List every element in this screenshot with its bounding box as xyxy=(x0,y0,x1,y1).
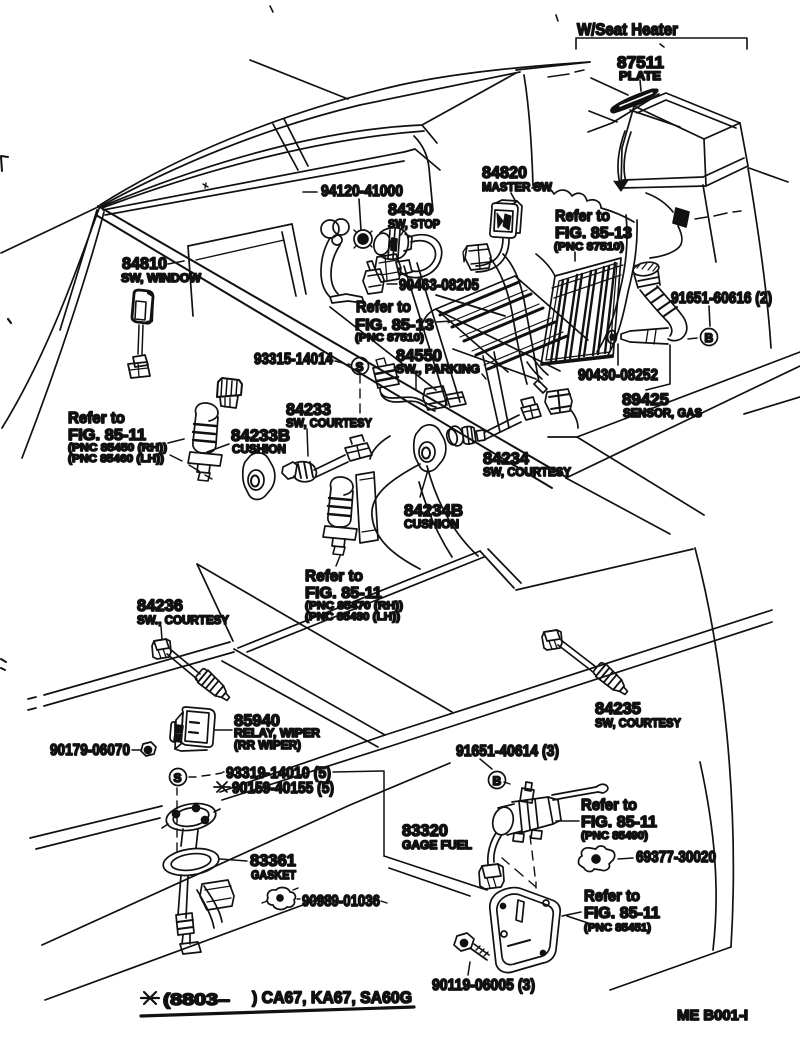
svg-text:Refer to: Refer to xyxy=(581,797,637,814)
svg-text:FIG. 85-11: FIG. 85-11 xyxy=(584,905,660,922)
svg-text:GAGE FUEL: GAGE FUEL xyxy=(402,838,472,852)
svg-text:Refer to: Refer to xyxy=(68,410,125,427)
svg-text:ME B001-I: ME B001-I xyxy=(677,1007,748,1024)
svg-text:(PNC 85480 (LH)): (PNC 85480 (LH)) xyxy=(305,611,400,623)
svg-text:S: S xyxy=(356,360,364,374)
svg-text:SW, COURTESY: SW, COURTESY xyxy=(286,416,372,430)
svg-text:(PNC 87510): (PNC 87510) xyxy=(355,332,424,344)
svg-text:94120-41000: 94120-41000 xyxy=(321,183,403,200)
svg-text:(8803–: (8803– xyxy=(163,990,230,1009)
svg-text:Refer to: Refer to xyxy=(555,208,610,225)
svg-text:MASTER SW: MASTER SW xyxy=(482,180,553,194)
svg-text:) CA67, KA67, SA60G: ) CA67, KA67, SA60G xyxy=(252,988,412,1007)
svg-text:Refer to: Refer to xyxy=(584,888,640,905)
svg-text:90989-01036: 90989-01036 xyxy=(302,893,380,910)
svg-text:Refer to: Refer to xyxy=(305,568,363,585)
svg-text:(PNC 85460 (LH)): (PNC 85460 (LH)) xyxy=(68,453,164,465)
svg-text:B: B xyxy=(493,774,502,788)
svg-text:90463-08205: 90463-08205 xyxy=(399,277,479,294)
svg-text:90159-40155 (5): 90159-40155 (5) xyxy=(232,780,334,797)
svg-text:GASKET: GASKET xyxy=(251,868,297,882)
svg-text:90179-06070: 90179-06070 xyxy=(50,742,130,759)
svg-text:SW, COURTESY: SW, COURTESY xyxy=(595,716,681,730)
svg-text:SW., COURTESY: SW., COURTESY xyxy=(137,613,229,627)
svg-text:SW, COURTESY: SW, COURTESY xyxy=(483,465,571,479)
svg-text:(PNC 87510): (PNC 87510) xyxy=(554,241,624,253)
svg-text:91651-40614 (3): 91651-40614 (3) xyxy=(456,743,559,760)
svg-text:W/Seat Heater: W/Seat Heater xyxy=(577,20,678,39)
svg-text:Refer to: Refer to xyxy=(356,299,411,316)
svg-text:93315-14014: 93315-14014 xyxy=(254,351,333,368)
svg-text:90119-06005 (3): 90119-06005 (3) xyxy=(432,977,535,994)
svg-text:(PNC 85490): (PNC 85490) xyxy=(581,830,648,842)
svg-text:S: S xyxy=(174,771,182,785)
svg-text:90430-08252: 90430-08252 xyxy=(578,367,658,384)
svg-text:SW, WINDOW: SW, WINDOW xyxy=(121,271,202,285)
svg-text:FIG. 85-11: FIG. 85-11 xyxy=(581,814,657,831)
svg-text:(PNC 85451): (PNC 85451) xyxy=(584,922,651,934)
svg-text:B: B xyxy=(705,331,714,345)
svg-text:CUSHION: CUSHION xyxy=(232,442,286,456)
svg-text:SW., PARKING: SW., PARKING xyxy=(396,362,480,376)
svg-text:FIG. 85-13: FIG. 85-13 xyxy=(555,225,632,242)
svg-text:(RR WIPER): (RR WIPER) xyxy=(234,738,301,752)
svg-text:69377-30020: 69377-30020 xyxy=(636,849,716,866)
svg-text:91651-60616 (2): 91651-60616 (2) xyxy=(671,290,772,307)
